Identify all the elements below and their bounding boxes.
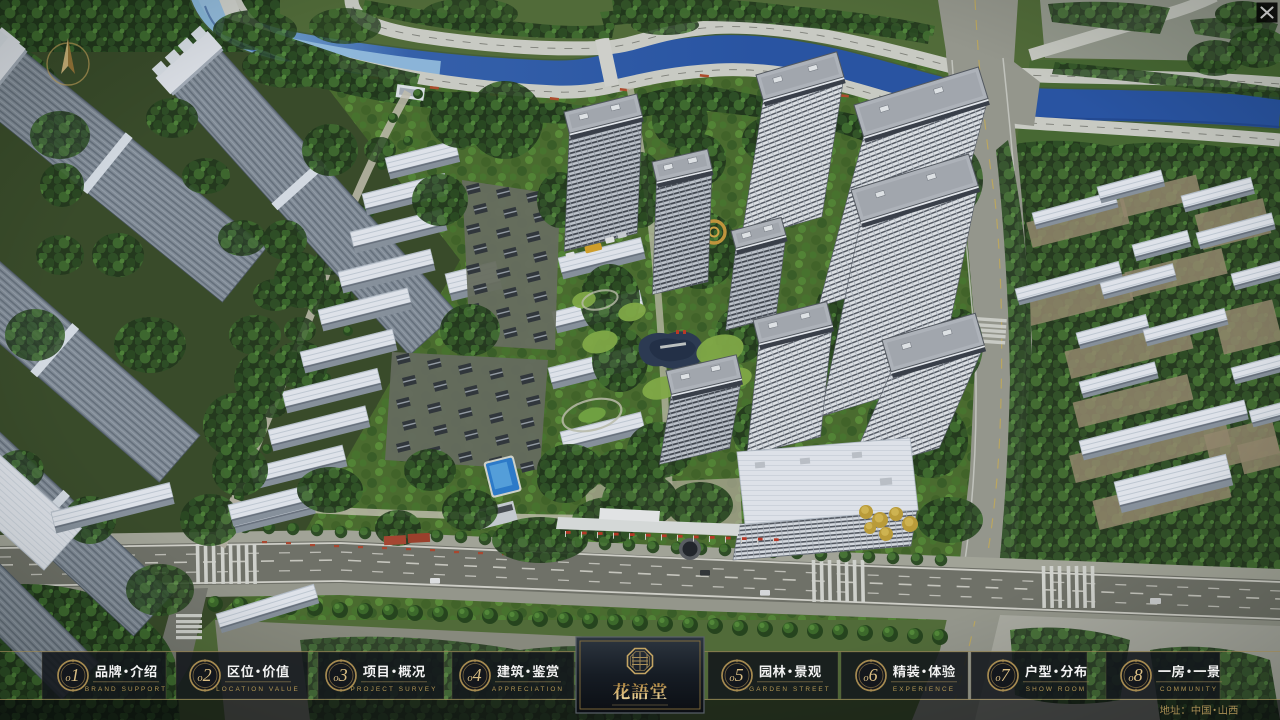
svg-text:PROJECT SURVEY: PROJECT SURVEY xyxy=(350,686,437,693)
svg-text:LOCATION VALUE: LOCATION VALUE xyxy=(216,686,300,693)
svg-text:SHOW ROOM: SHOW ROOM xyxy=(1026,686,1086,693)
svg-text:APPRECIATION: APPRECIATION xyxy=(492,686,564,693)
svg-text:BRAND SUPPORT: BRAND SUPPORT xyxy=(85,686,167,693)
svg-text:COMMUNITY: COMMUNITY xyxy=(1160,686,1218,693)
svg-text:EXPERIENCE: EXPERIENCE xyxy=(893,686,955,693)
svg-text:GARDEN STREET: GARDEN STREET xyxy=(749,686,831,693)
